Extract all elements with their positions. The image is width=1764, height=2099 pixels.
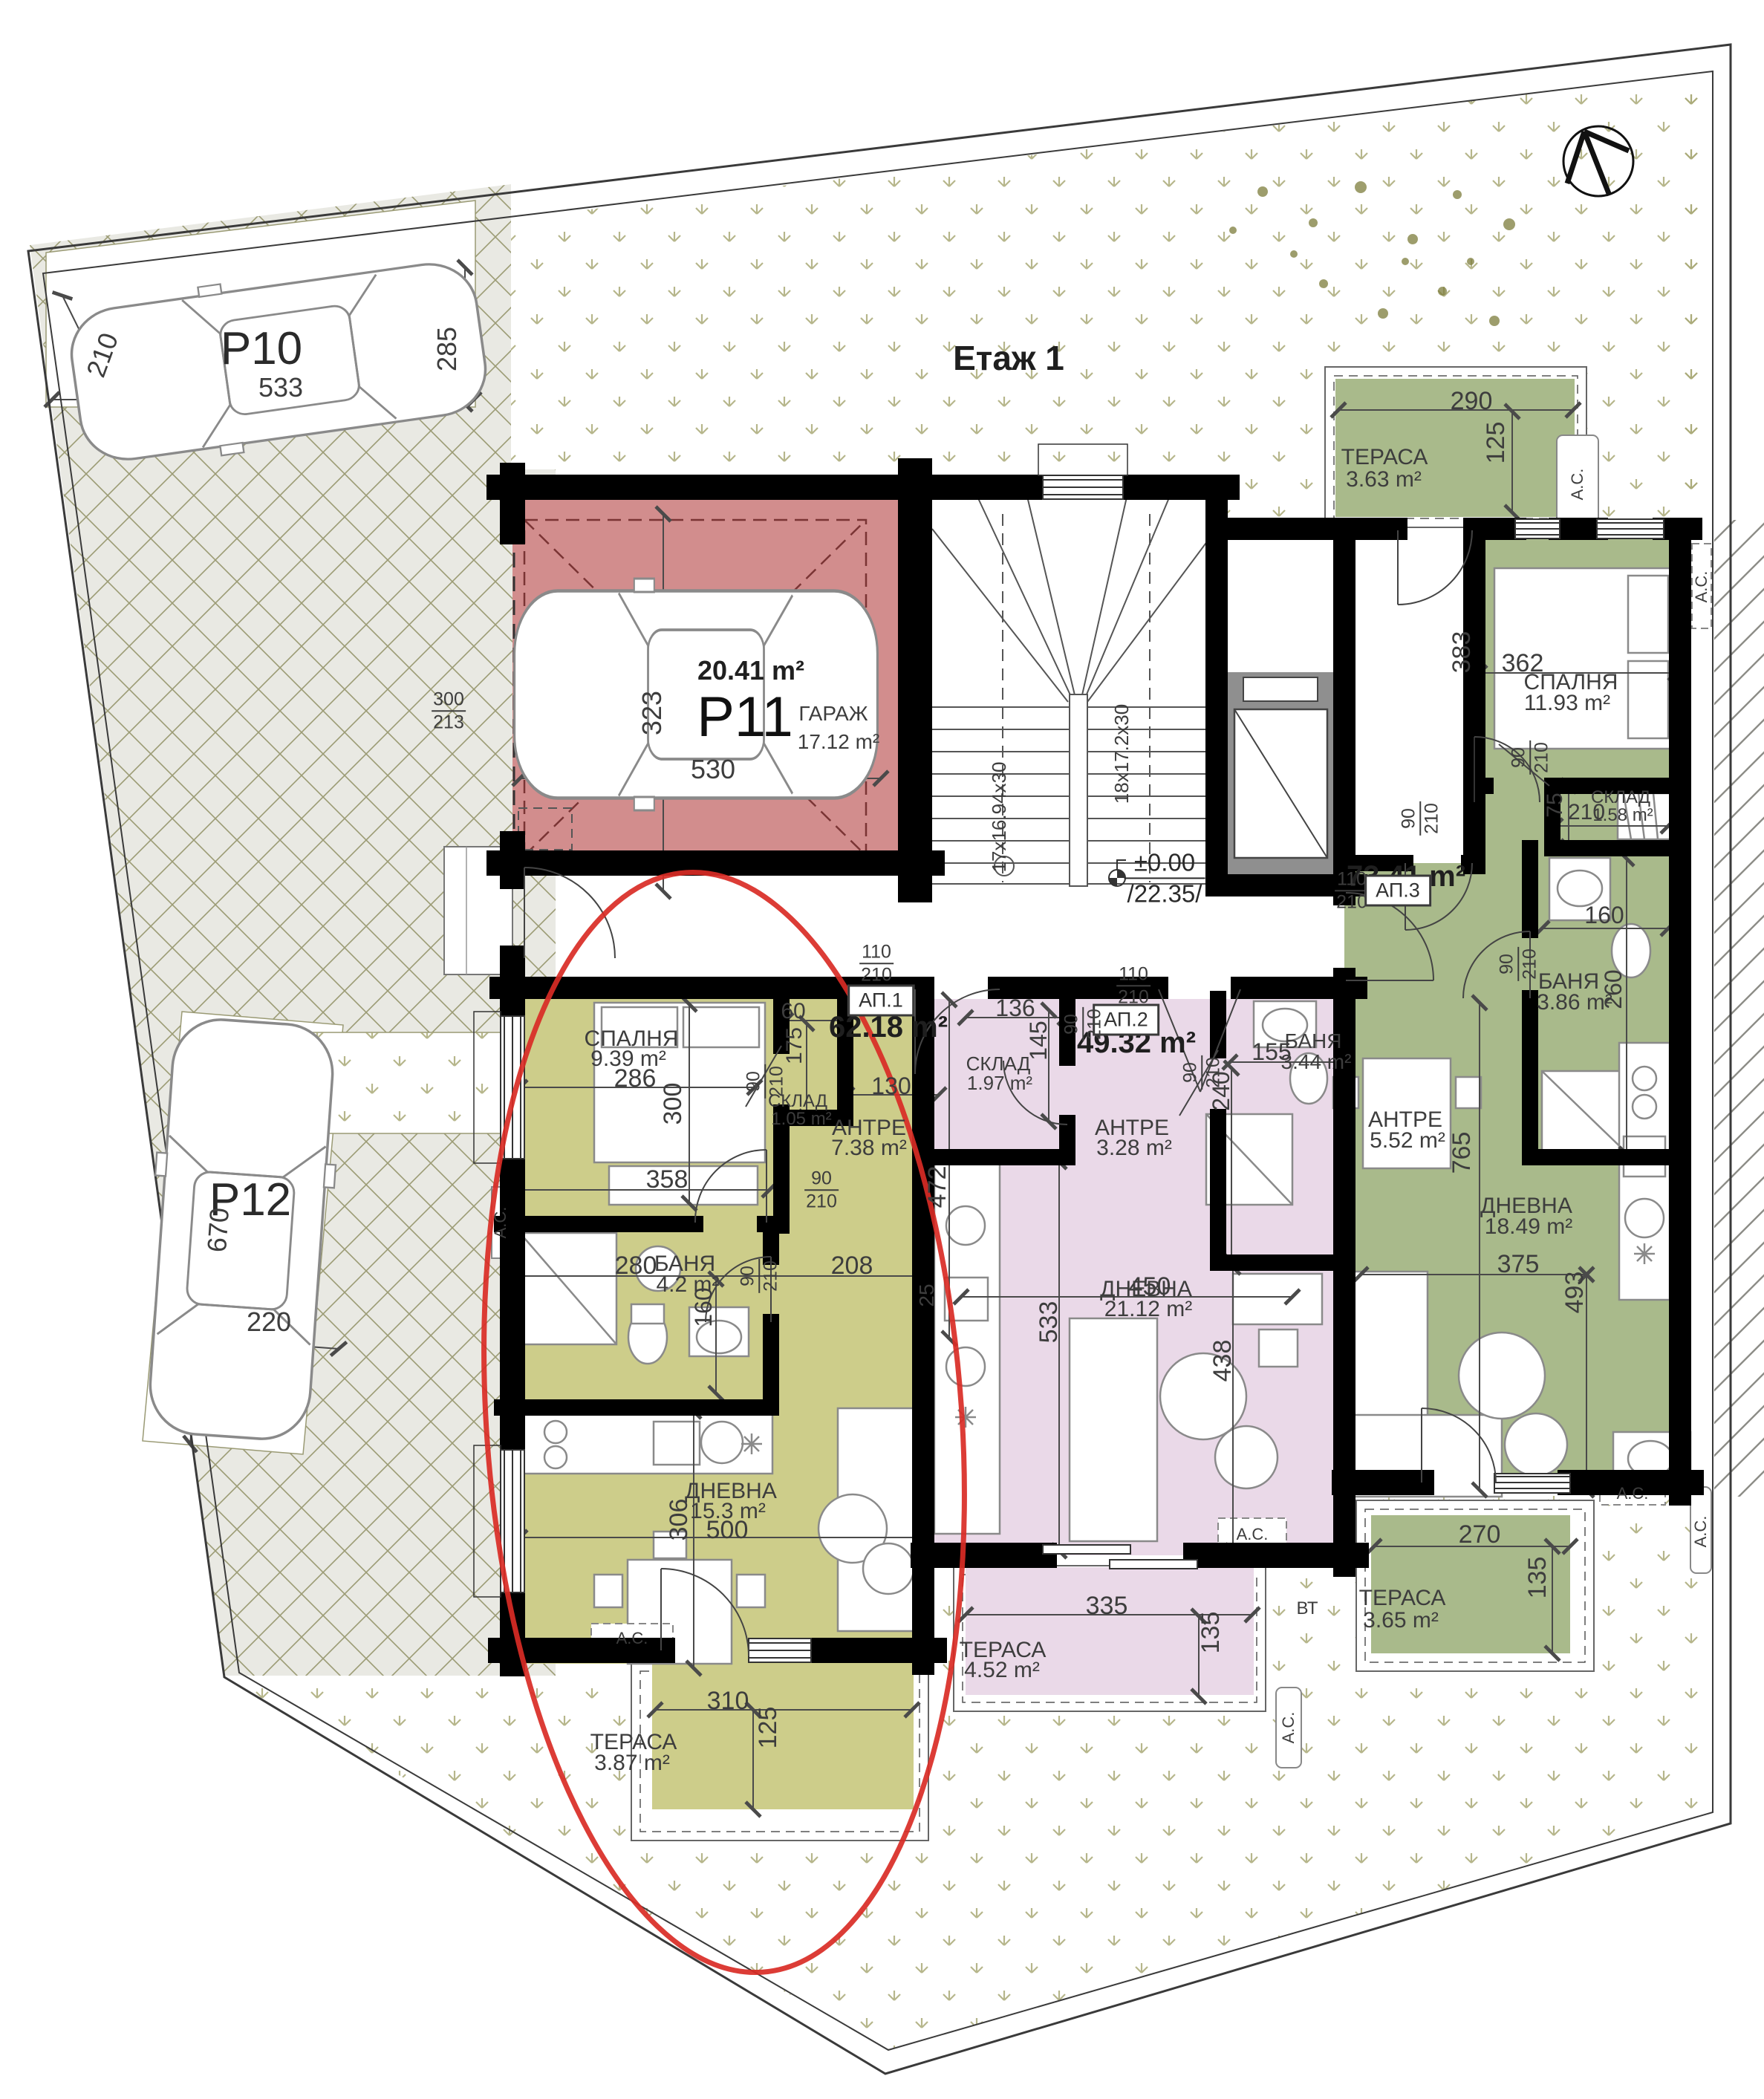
dim-ap1-bath-h: 160 [691, 1287, 715, 1327]
dim-ap2-storage-w: 136 [995, 996, 1035, 1020]
room-area-garage: 17.12 m² [798, 732, 880, 752]
ap3-antre-door-w: 90 [1398, 808, 1419, 829]
ac-label-ap3-terrace-n: А.С. [1569, 469, 1586, 501]
parking-label-p10: P10 [221, 326, 302, 372]
dim-ap2-storage-door: 90 210 [1061, 1007, 1105, 1041]
stair-flight-2: 18x17.2x30 [1112, 704, 1131, 804]
room-area-ap3-antre: 5.52 m² [1370, 1130, 1445, 1152]
room-area-ap2-terrace: 4.52 m² [964, 1659, 1040, 1682]
room-area-ap3-bedroom: 11.93 m² [1524, 692, 1610, 715]
parking-label-p11: P11 [697, 689, 793, 746]
ap2-storage-door-h: 210 [1082, 1007, 1105, 1041]
dim-ap1-storage-door: 90 210 [743, 1064, 787, 1099]
dim-ap3-terrace-s-h: 135 [1525, 1557, 1550, 1599]
ac-label-ap3-terrace-s: А.С. [1693, 1516, 1709, 1548]
dim-ap3-bedroom-w: 362 [1502, 651, 1544, 676]
room-label-garage: ГАРАЖ [798, 703, 868, 724]
dim-garage-offset-b: 213 [432, 710, 466, 733]
dim-ap1-living-w: 500 [706, 1517, 749, 1543]
dim-ap1-living-h: 306 [666, 1499, 691, 1541]
room-label-ap2-bath: БАНЯ [1285, 1031, 1342, 1052]
dim-ap3-bedroom-h: 383 [1449, 631, 1474, 674]
dim-ap1-antre-h: 472 [925, 1166, 950, 1208]
room-area-ap1-storage: 1.05 m² [771, 1110, 831, 1128]
room-area-ap1-antre: 7.38 m² [831, 1137, 907, 1159]
floor-plan-drawing [0, 0, 1764, 2099]
dim-ap2-bath-h: 240 [1209, 1071, 1233, 1110]
ac-label-ap2: А.С. [1237, 1526, 1269, 1543]
level-mark: ±0.00 /22.35/ [1125, 847, 1205, 908]
dim-ap2-living-w: 533 [1036, 1301, 1061, 1344]
ap1-antre-door-h: 210 [804, 1189, 839, 1212]
dim-ap1-terrace-w: 310 [707, 1688, 749, 1714]
ap1-door-w: 110 [862, 941, 891, 963]
dim-ap2-storage-h: 145 [1026, 1021, 1050, 1060]
ap1-antre-door-w: 90 [811, 1168, 832, 1189]
dim-ap3-living-h2: 493 [1562, 1272, 1587, 1314]
room-area-ap2-antre: 3.28 m² [1096, 1137, 1172, 1159]
dim-ap3-bath-h: 260 [1601, 969, 1625, 1009]
dim-ap2-bath-w: 155 [1252, 1040, 1291, 1064]
room-area-ap3-terrace-s: 3.65 m² [1363, 1610, 1439, 1632]
dim-ap1-bedroom-w: 286 [614, 1066, 657, 1091]
room-area-ap2-living: 21.12 m² [1104, 1298, 1192, 1321]
ap1-total-area: 62.18 m² [829, 1012, 948, 1042]
room-area-ap3-terrace-n: 3.63 m² [1346, 469, 1422, 491]
room-area-ap2-storage: 1.97 m² [967, 1073, 1032, 1093]
bt-label: ВТ [1296, 1600, 1318, 1618]
dim-ap1-bedroom-h: 300 [660, 1083, 686, 1125]
ap1-tag: АП.1 [847, 985, 914, 1017]
dim-ap1-antre-d4: 25 [917, 1283, 937, 1306]
ap2-door-dim: 110 210 [1116, 963, 1150, 1008]
stair-flight-1: 17x16.94x30 [989, 762, 1009, 873]
ap3-bath-door-w: 90 [1496, 954, 1517, 974]
room-label-ap3-terrace-n: ТЕРАСА [1341, 446, 1428, 469]
dim-garage-offset-a: 300 [433, 689, 464, 710]
ap3-antre-door-h: 210 [1419, 801, 1442, 836]
room-area-ap1-terrace: 3.87 m² [594, 1752, 670, 1774]
dim-p12-width: 220 [247, 1309, 291, 1335]
dim-garage-depth: 323 [639, 691, 665, 735]
floor-plan-page: Етаж 1 P10 533 285 210 20.41 m² P11 ГАРА… [0, 0, 1764, 2099]
dim-garage-width: 530 [691, 756, 735, 783]
dim-ap1-terrace-h: 125 [755, 1707, 781, 1749]
room-area-ap2-bath: 3.44 m² [1281, 1052, 1352, 1073]
ap2-door-h: 210 [1116, 985, 1150, 1008]
dim-ap3-storage-w: 210 [1568, 801, 1605, 824]
room-area-ap3-living: 18.49 m² [1485, 1216, 1572, 1238]
ap1-bath-door-w: 90 [737, 1266, 758, 1286]
ac-label-ap1-wall: А.С. [492, 1207, 509, 1239]
dim-ap2-terrace-w: 335 [1086, 1593, 1128, 1618]
ap2-bath-door-w: 90 [1179, 1062, 1201, 1083]
dim-ap3-living-w: 375 [1497, 1252, 1540, 1277]
ap1-storage-door-w: 90 [743, 1071, 764, 1092]
ac-label-ap1-living: А.С. [616, 1630, 648, 1647]
dim-ap3-bath-w: 160 [1584, 903, 1624, 927]
ac-label-ap3-garden: А.С. [1280, 1712, 1297, 1744]
ap1-door-h: 210 [859, 963, 894, 986]
dim-ap1-storage-h: 175 [784, 1027, 806, 1064]
level-zero: ±0.00 [1134, 847, 1195, 877]
ap3-storage-door-h: 210 [1529, 741, 1552, 775]
dim-ap3-bath-door: 90 210 [1496, 947, 1540, 981]
dim-ap3-terrace-n-h: 125 [1483, 422, 1508, 464]
ap3-door-h: 210 [1335, 890, 1369, 913]
dim-ap1-storage-w: 60 [781, 1000, 805, 1023]
dim-ap1-antre-door: 90 210 [804, 1168, 839, 1212]
dim-ap3-terrace-n-w: 290 [1451, 388, 1493, 414]
dim-garage-offset: 300 213 [432, 689, 466, 733]
dim-ap3-storage-h: 75 [1544, 793, 1566, 817]
ap1-storage-door-h: 210 [764, 1064, 787, 1099]
dim-ap3-storage-door: 90 210 [1508, 741, 1552, 775]
ac-label-ap3-bedroom: А.С. [1693, 571, 1710, 603]
ap1-door-dim: 110 210 [859, 941, 894, 986]
ap2-storage-door-w: 90 [1061, 1014, 1082, 1035]
dim-ap1-bedroom-w2: 358 [646, 1167, 689, 1192]
ap3-storage-door-w: 90 [1508, 747, 1529, 768]
elevator-shaft [1220, 672, 1344, 885]
ap1-bath-door-h: 210 [758, 1259, 781, 1293]
dim-ap3-terrace-s-w: 270 [1459, 1522, 1501, 1547]
ap3-door-dim: 110 210 [1335, 868, 1369, 913]
room-label-ap3-terrace-s: ТЕРАСА [1359, 1587, 1446, 1610]
dim-ap1-antre-d3: 208 [831, 1253, 873, 1278]
dim-ap2-living-h: 438 [1210, 1340, 1235, 1382]
ap3-bath-door-h: 210 [1517, 947, 1540, 981]
dim-ap3-living-h: 765 [1449, 1132, 1474, 1174]
dim-p10-depth: 285 [434, 327, 460, 371]
dim-ap3-antre-door: 90 210 [1398, 801, 1442, 836]
dim-ap1-antre-w: 130 [871, 1074, 911, 1098]
page-title: Етаж 1 [953, 341, 1064, 375]
dim-p10-width: 533 [258, 374, 303, 401]
garage-total-area: 20.41 m² [697, 657, 804, 684]
ap2-door-w: 110 [1119, 963, 1148, 985]
ap3-tag: АП.3 [1364, 875, 1431, 907]
dim-p12-length: 670 [204, 1207, 233, 1253]
dim-ap1-bath-door: 90 210 [737, 1259, 781, 1293]
level-absolute: /22.35/ [1125, 877, 1205, 908]
room-label-ap2-storage: СКЛАД [966, 1054, 1031, 1073]
dim-ap1-bath-w: 280 [615, 1253, 657, 1278]
ap3-door-w: 110 [1337, 868, 1367, 890]
ac-label-ap3-living: А.С. [1617, 1485, 1649, 1502]
dim-ap2-terrace-h: 135 [1198, 1612, 1223, 1654]
